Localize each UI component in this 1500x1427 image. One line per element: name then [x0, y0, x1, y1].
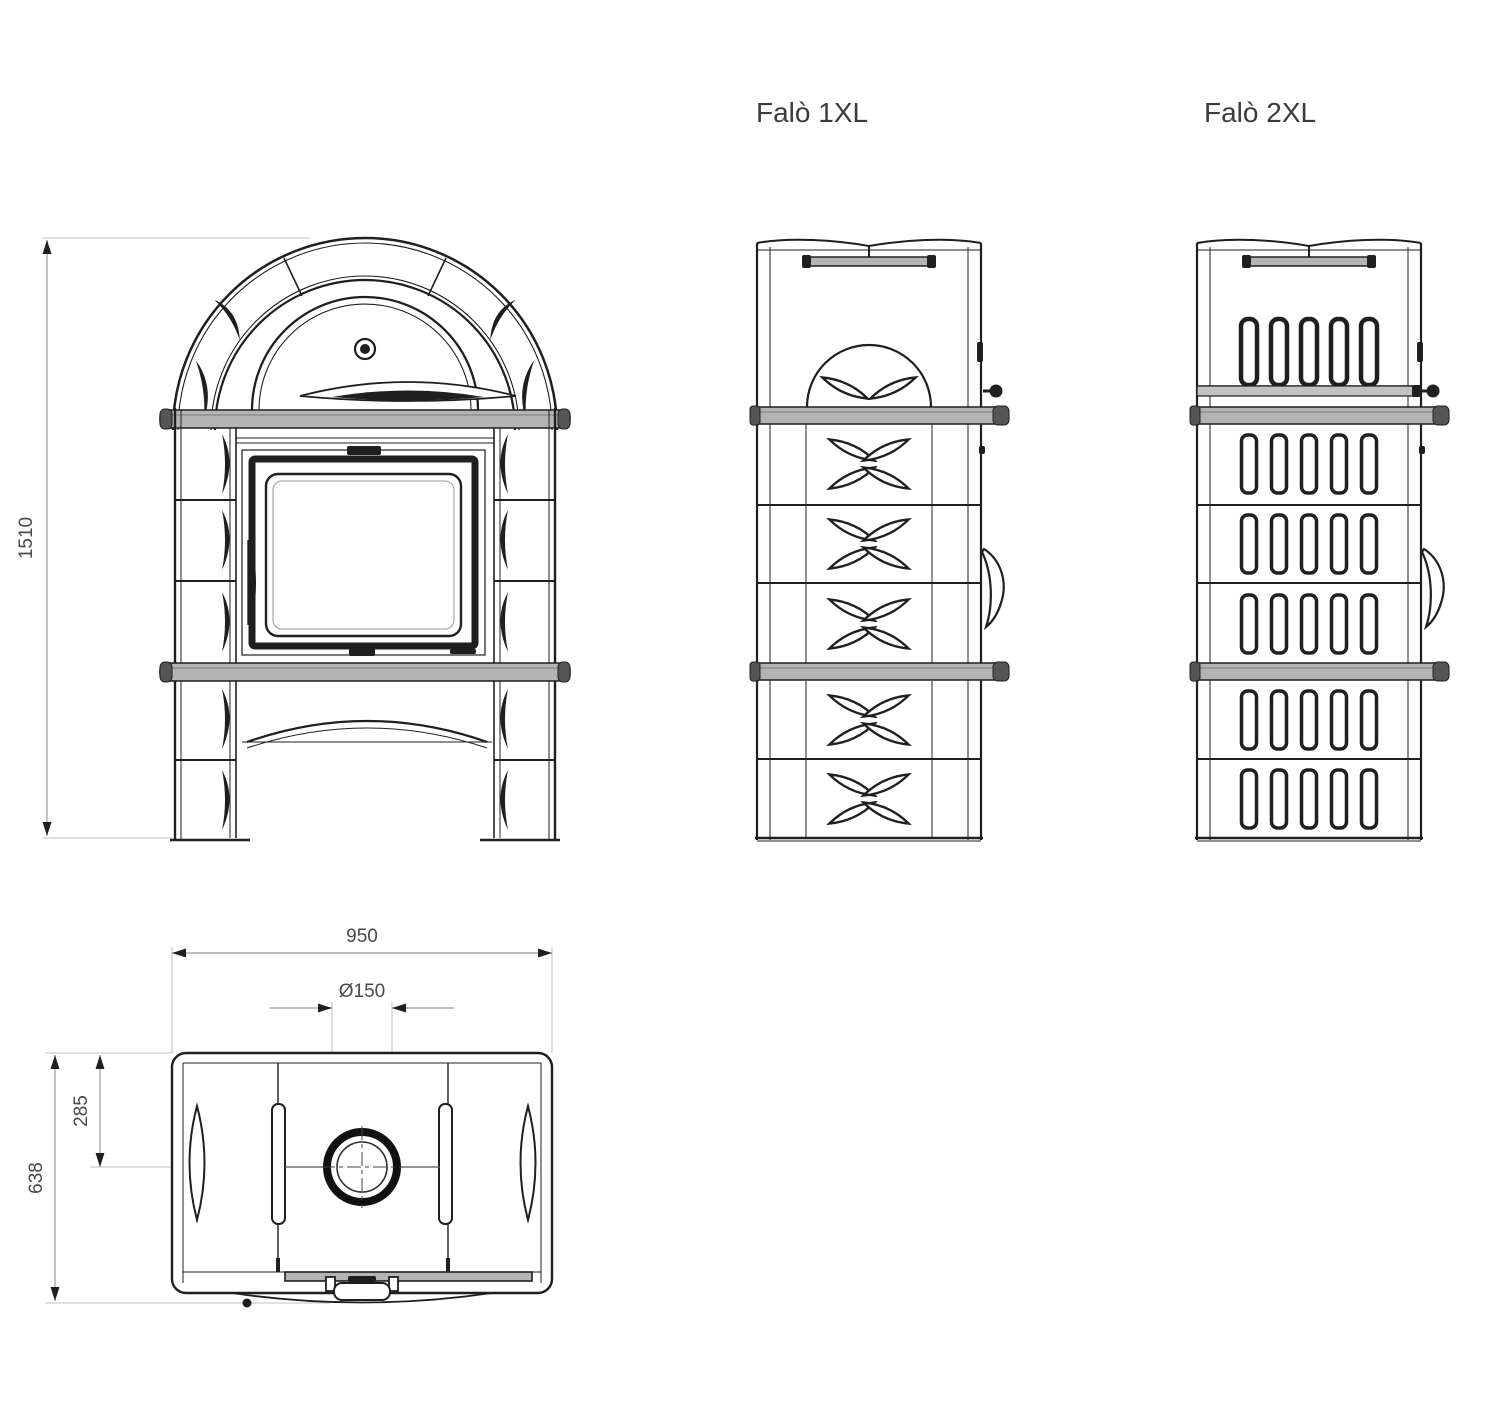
tile-crescent	[484, 296, 516, 341]
dimension-value-offset: 285	[71, 1095, 92, 1127]
wall-latch	[1417, 342, 1423, 362]
dimension-arrow	[318, 1004, 332, 1013]
leaf-tile	[827, 770, 910, 827]
slat-tile	[1242, 595, 1377, 653]
front-door-handle-top	[334, 1283, 390, 1300]
damper-knob-center	[360, 344, 370, 354]
sv2-base-rows	[1195, 691, 1423, 841]
shelf-end-cap	[993, 406, 1009, 425]
foot-dot	[243, 1299, 252, 1308]
sv1-upper-shelf	[750, 406, 1009, 425]
top-edge	[1197, 240, 1421, 246]
model-label-1xl: Falò 1XL	[756, 97, 868, 128]
slat-tile	[1242, 691, 1377, 749]
shelf-end-cap	[160, 662, 172, 682]
leaf-tile	[827, 691, 910, 748]
shelf-end-cap	[558, 662, 570, 682]
side-view-1xl: Falò 1XL	[750, 97, 1009, 841]
handle-latch	[348, 1276, 376, 1282]
tile-crescent	[222, 434, 230, 494]
side-door-handle	[1422, 549, 1444, 627]
top-edge	[757, 240, 981, 246]
sv1-lower-shelf	[750, 662, 1009, 681]
top-handle-bar	[1246, 257, 1372, 266]
front-left-column	[170, 408, 250, 840]
shelf-band	[752, 407, 1008, 424]
sv2-thin-shelf	[1197, 385, 1440, 398]
front-arch	[173, 238, 557, 430]
front-apron	[242, 721, 492, 748]
door-frame	[252, 459, 475, 646]
dimension-arrow	[51, 1055, 60, 1069]
shelf-end-cap	[160, 409, 172, 429]
sv2-tile-rows	[1197, 435, 1444, 653]
shelf-band	[1192, 407, 1448, 424]
shelf-end-cap	[750, 662, 760, 681]
apron-arc	[247, 721, 487, 742]
dimension-arrow	[96, 1055, 105, 1069]
tile-crescent	[222, 770, 230, 830]
slat-tile	[1242, 515, 1377, 573]
technical-drawing-canvas: 1510	[0, 0, 1500, 1427]
wall-latch	[1419, 446, 1425, 454]
front-right-column	[480, 408, 560, 840]
dimension-value-height: 1510	[16, 517, 37, 559]
dimension-value-depth: 638	[26, 1162, 47, 1194]
dimension-arrow	[43, 240, 52, 254]
shelf-end-cap	[1433, 662, 1449, 681]
shelf-end-cap	[1412, 385, 1421, 397]
sv1-body	[757, 240, 1003, 840]
handle-bar-cap	[802, 255, 811, 268]
sv2-lower-shelf	[1190, 662, 1449, 681]
top-grille	[1241, 319, 1377, 385]
tile-crescent	[214, 296, 246, 341]
tile-crescent	[501, 510, 509, 570]
sv1-base-rows	[755, 681, 983, 841]
tile-crescent	[501, 434, 509, 494]
top-view: 950 Ø150 285 638	[26, 926, 552, 1308]
shelf-band	[160, 663, 570, 681]
slat-tile	[1242, 435, 1377, 493]
tile-crescent	[222, 689, 230, 749]
dimension-arrow	[96, 1153, 105, 1167]
sv2-upper-shelf	[1190, 406, 1449, 425]
door-bottom-latch	[349, 648, 375, 656]
drawing-page: 1510	[0, 0, 1500, 1427]
shelf-band	[1192, 663, 1448, 680]
arch-tile-joint	[428, 258, 446, 296]
front-lower-shelf	[160, 662, 570, 682]
door-top-latch	[347, 446, 381, 455]
firebox-door	[236, 438, 494, 656]
shelf-end-cap	[993, 662, 1009, 681]
top-handle-bar	[806, 257, 932, 266]
handle-bar-cap	[1367, 255, 1376, 268]
thin-shelf	[1197, 386, 1421, 396]
dimension-arrow	[43, 822, 52, 836]
tile-edge-bar	[439, 1104, 452, 1224]
side-view-2xl: Falò 2XL	[1190, 97, 1449, 841]
air-knob	[990, 385, 1003, 398]
front-upper-shelf	[160, 409, 570, 429]
dimension-arrow	[392, 1004, 406, 1013]
leaf-tile	[827, 515, 910, 572]
tile-crescent	[222, 510, 230, 570]
slat-tile	[1242, 770, 1377, 828]
tile-crescent	[501, 689, 509, 749]
handle-bar-cap	[1242, 255, 1251, 268]
dimension-value-flue: Ø150	[339, 981, 385, 1002]
dimension-arrow	[51, 1287, 60, 1301]
dimension-value-width: 950	[346, 926, 378, 947]
air-knob	[1427, 385, 1440, 398]
tile-crescent	[222, 592, 230, 652]
wall-latch	[979, 446, 985, 454]
sv1-tile-rows	[757, 424, 1004, 663]
front-shelf-edge	[285, 1272, 532, 1281]
tile-edge-bar	[272, 1104, 285, 1224]
leaf-tile	[827, 595, 910, 652]
dimension-arrow	[538, 949, 552, 958]
arch-tile-joint	[284, 258, 302, 296]
wall-latch	[977, 342, 983, 362]
handle-bar-cap	[927, 255, 936, 268]
arch-outer-arc	[173, 238, 557, 430]
shelf-band	[160, 410, 570, 428]
shelf-end-cap	[1190, 662, 1200, 681]
tile-crescent	[501, 592, 509, 652]
side-dome-arc	[807, 345, 931, 407]
side-door-handle	[982, 549, 1004, 627]
shelf-end-cap	[1190, 406, 1200, 425]
shelf-end-cap	[750, 406, 760, 425]
dimension-arrow	[172, 949, 186, 958]
model-label-2xl: Falò 2XL	[1204, 97, 1316, 128]
shelf-band	[752, 663, 1008, 680]
shelf-end-cap	[1433, 406, 1449, 425]
leaf-tile	[827, 435, 910, 492]
tile-crescent	[501, 770, 509, 830]
front-dome	[252, 297, 516, 410]
door-bottom-mark	[450, 649, 476, 654]
shelf-end-cap	[558, 409, 570, 429]
front-view: 1510	[16, 238, 570, 840]
arch-arc	[178, 243, 552, 430]
